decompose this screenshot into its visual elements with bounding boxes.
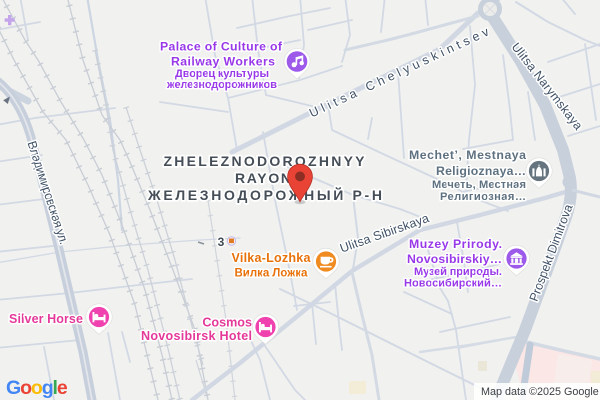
svg-text:ЖЕЛЕЗНОДОРОЖНЫЙ Р-Н: ЖЕЛЕЗНОДОРОЖНЫЙ Р-Н bbox=[147, 186, 382, 203]
svg-text:ZHELEZNODOROZHNYY: ZHELEZNODOROZHNYY bbox=[164, 153, 366, 169]
svg-text:Novosibirskiy…: Novosibirskiy… bbox=[407, 252, 502, 266]
svg-text:Silver Horse: Silver Horse bbox=[9, 312, 83, 326]
svg-text:Muzey Prirody.: Muzey Prirody. bbox=[409, 237, 502, 251]
svg-text:Palace of Culture of: Palace of Culture of bbox=[160, 40, 283, 54]
svg-text:Мечеть, Местная: Мечеть, Местная bbox=[432, 179, 526, 191]
svg-text:железнодорожников: железнодорожников bbox=[166, 79, 277, 91]
svg-text:Вилка Ложка: Вилка Ложка bbox=[235, 267, 309, 280]
svg-text:Музей природы.: Музей природы. bbox=[414, 266, 502, 278]
svg-text:Google: Google bbox=[6, 377, 68, 399]
svg-text:Mechet’, Mestnaya: Mechet’, Mestnaya bbox=[409, 148, 526, 162]
svg-text:Vilka-Lozhka: Vilka-Lozhka bbox=[232, 251, 312, 265]
svg-text:RAYON: RAYON bbox=[235, 170, 291, 186]
svg-text:Novosibirsk Hotel: Novosibirsk Hotel bbox=[141, 329, 252, 343]
svg-text:Religioznaya…: Religioznaya… bbox=[436, 164, 526, 178]
svg-text:Cosmos: Cosmos bbox=[202, 316, 252, 330]
svg-text:Новосибирский…: Новосибирский… bbox=[404, 278, 502, 290]
svg-text:3: 3 bbox=[218, 235, 225, 249]
svg-text:Религиозная…: Религиозная… bbox=[440, 191, 526, 203]
svg-text:Map data ©2025 Google: Map data ©2025 Google bbox=[481, 386, 599, 398]
svg-text:Railway Workers: Railway Workers bbox=[171, 55, 275, 69]
